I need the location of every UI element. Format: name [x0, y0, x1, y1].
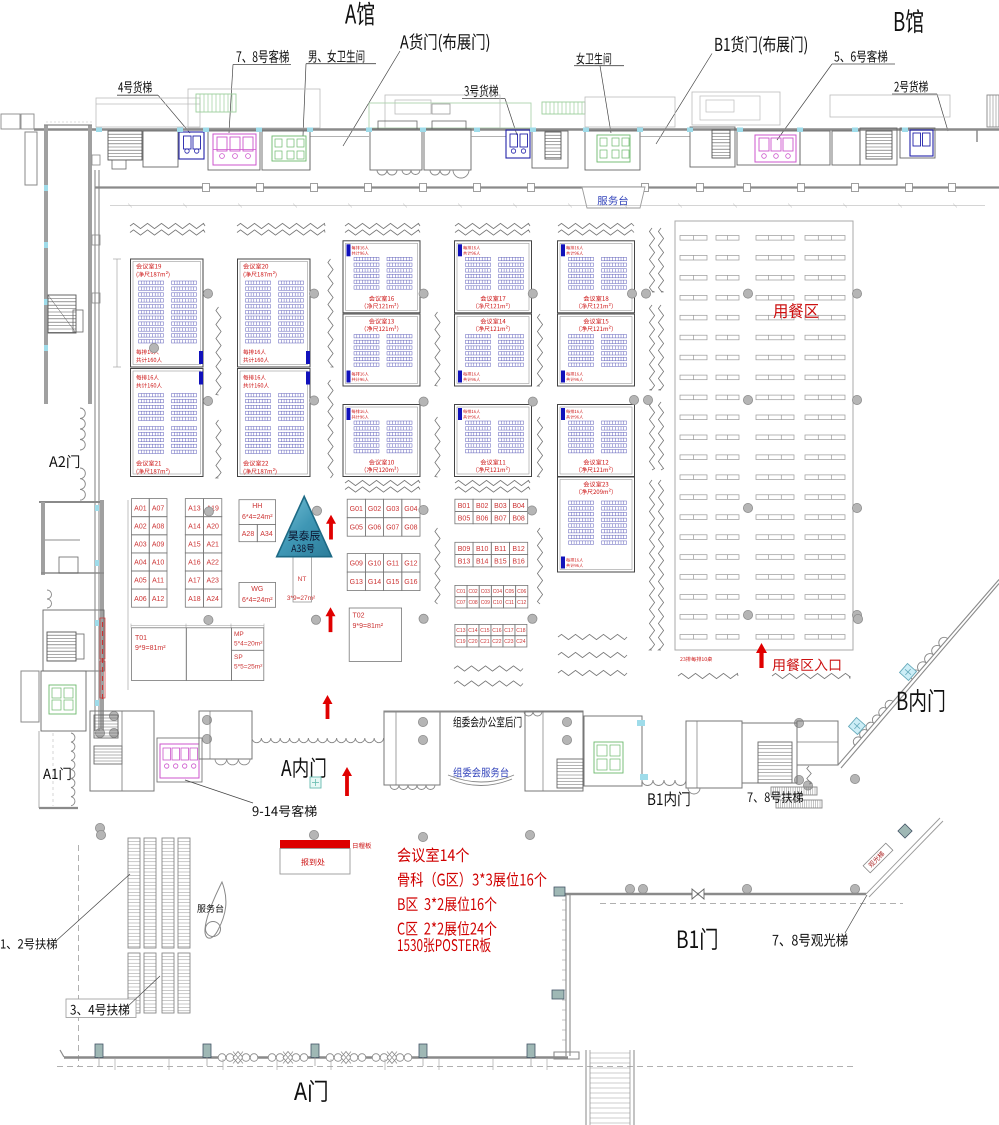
- svg-text:A15: A15: [188, 542, 201, 549]
- svg-text:A21: A21: [206, 542, 219, 549]
- svg-text:A01: A01: [134, 505, 147, 512]
- svg-text:A18: A18: [188, 596, 201, 603]
- svg-text:B01: B01: [458, 503, 471, 510]
- svg-text:B03: B03: [494, 503, 507, 510]
- svg-text:G13: G13: [350, 579, 363, 586]
- svg-text:G16: G16: [404, 579, 417, 586]
- svg-text:C16: C16: [492, 628, 501, 634]
- svg-text:A04: A04: [134, 560, 147, 567]
- svg-text:B14: B14: [476, 558, 489, 565]
- svg-text:B04: B04: [512, 503, 525, 510]
- svg-text:HH: HH: [252, 503, 262, 510]
- svg-text:A34: A34: [260, 531, 273, 538]
- svg-text:C10: C10: [493, 600, 502, 606]
- svg-text:G12: G12: [404, 561, 417, 568]
- svg-text:C13: C13: [456, 628, 465, 634]
- svg-text:A28: A28: [242, 531, 255, 538]
- svg-text:A13: A13: [188, 505, 201, 512]
- svg-text:C18: C18: [516, 628, 525, 634]
- svg-text:G10: G10: [368, 561, 381, 568]
- svg-text:G09: G09: [350, 561, 363, 568]
- svg-text:A22: A22: [206, 560, 219, 567]
- svg-text:A02: A02: [134, 523, 147, 530]
- svg-text:A16: A16: [188, 560, 201, 567]
- svg-text:G15: G15: [386, 579, 399, 586]
- svg-text:A08: A08: [152, 523, 165, 530]
- svg-text:A03: A03: [134, 542, 147, 549]
- svg-text:6*4=24m²: 6*4=24m²: [242, 514, 273, 521]
- svg-text:6*4=24m²: 6*4=24m²: [242, 597, 273, 604]
- svg-text:C01: C01: [456, 589, 465, 595]
- svg-text:B13: B13: [458, 558, 471, 565]
- svg-text:B07: B07: [494, 515, 507, 522]
- svg-text:B11: B11: [494, 546, 506, 553]
- svg-text:G01: G01: [350, 506, 363, 513]
- svg-text:C07: C07: [456, 600, 465, 606]
- svg-text:NT: NT: [298, 576, 307, 583]
- svg-text:WG: WG: [251, 586, 263, 593]
- svg-text:C12: C12: [517, 600, 526, 606]
- svg-text:5*4=20m²: 5*4=20m²: [234, 641, 263, 648]
- svg-text:B08: B08: [512, 515, 525, 522]
- svg-text:A06: A06: [134, 596, 147, 603]
- svg-text:C14: C14: [468, 628, 477, 634]
- svg-text:SP: SP: [234, 654, 243, 661]
- svg-text:C21: C21: [480, 639, 489, 645]
- svg-text:C17: C17: [504, 628, 513, 634]
- svg-text:C09: C09: [481, 600, 490, 606]
- svg-text:G14: G14: [368, 579, 381, 586]
- svg-text:3*9=27m²: 3*9=27m²: [287, 595, 316, 602]
- svg-text:A17: A17: [188, 578, 201, 585]
- svg-text:MP: MP: [234, 631, 244, 638]
- svg-text:G08: G08: [404, 525, 417, 532]
- svg-text:G06: G06: [368, 525, 381, 532]
- svg-text:C22: C22: [492, 639, 501, 645]
- svg-text:B05: B05: [458, 515, 471, 522]
- svg-text:C06: C06: [517, 589, 526, 595]
- svg-text:A12: A12: [152, 596, 165, 603]
- svg-text:C19: C19: [456, 639, 465, 645]
- svg-text:A20: A20: [206, 523, 219, 530]
- svg-text:G07: G07: [386, 525, 399, 532]
- svg-text:B12: B12: [512, 546, 525, 553]
- svg-text:9*9=81m²: 9*9=81m²: [353, 623, 384, 630]
- svg-text:A14: A14: [188, 523, 201, 530]
- svg-text:5*5=25m²: 5*5=25m²: [234, 664, 263, 671]
- svg-text:C08: C08: [469, 600, 478, 606]
- svg-text:B15: B15: [494, 558, 507, 565]
- svg-text:C04: C04: [493, 589, 502, 595]
- svg-text:G04: G04: [404, 506, 417, 513]
- svg-text:B10: B10: [476, 546, 489, 553]
- svg-text:A11: A11: [152, 578, 164, 585]
- svg-text:C15: C15: [480, 628, 489, 634]
- svg-text:C23: C23: [504, 639, 513, 645]
- svg-text:B06: B06: [476, 515, 489, 522]
- svg-text:C02: C02: [469, 589, 478, 595]
- svg-text:A09: A09: [152, 542, 165, 549]
- svg-text:A24: A24: [206, 596, 219, 603]
- svg-text:C03: C03: [481, 589, 490, 595]
- svg-text:G05: G05: [350, 525, 363, 532]
- svg-text:B02: B02: [476, 503, 489, 510]
- svg-text:B16: B16: [512, 558, 525, 565]
- svg-text:G11: G11: [386, 561, 399, 568]
- svg-text:C24: C24: [516, 639, 525, 645]
- svg-text:A05: A05: [134, 578, 147, 585]
- svg-text:C05: C05: [505, 589, 514, 595]
- svg-text:A23: A23: [206, 578, 219, 585]
- svg-text:T02: T02: [353, 613, 365, 620]
- svg-text:9*9=81m²: 9*9=81m²: [135, 645, 166, 652]
- svg-text:C20: C20: [468, 639, 477, 645]
- svg-text:A07: A07: [152, 505, 165, 512]
- svg-text:T01: T01: [135, 635, 147, 642]
- svg-text:B09: B09: [458, 546, 471, 553]
- svg-text:G02: G02: [368, 506, 381, 513]
- svg-text:A10: A10: [152, 560, 165, 567]
- svg-text:G03: G03: [386, 506, 399, 513]
- svg-text:C11: C11: [505, 600, 514, 606]
